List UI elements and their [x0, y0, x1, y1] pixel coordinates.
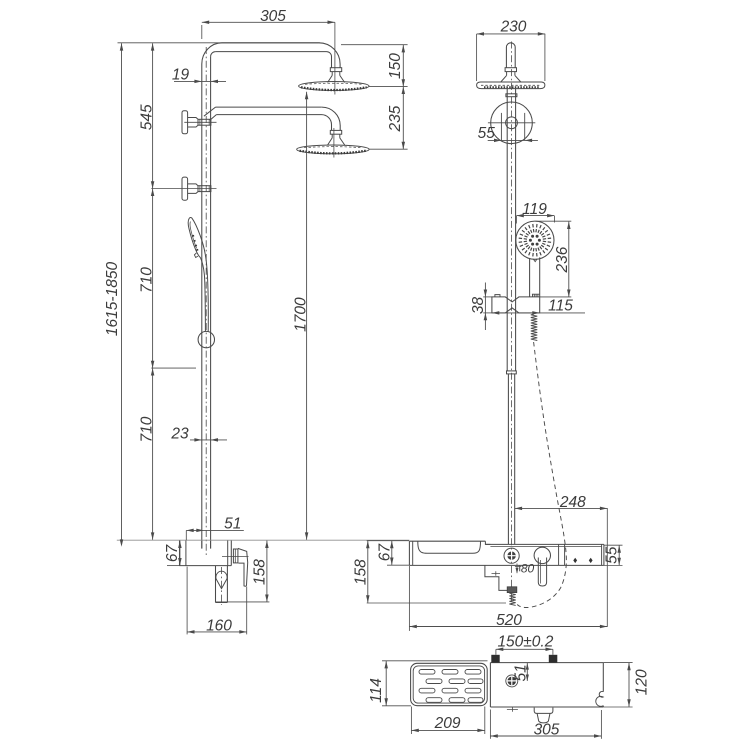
svg-text:51: 51 — [513, 664, 530, 681]
svg-text:23: 23 — [170, 426, 189, 443]
svg-text:120: 120 — [633, 669, 650, 695]
svg-text:1700: 1700 — [292, 297, 309, 332]
svg-text:520: 520 — [496, 612, 522, 629]
svg-text:710: 710 — [138, 267, 155, 293]
svg-text:545: 545 — [139, 104, 156, 130]
svg-text:305: 305 — [260, 8, 286, 25]
svg-text:55: 55 — [478, 125, 496, 142]
svg-text:236: 236 — [554, 246, 571, 273]
svg-text:710: 710 — [138, 416, 155, 442]
svg-text:160: 160 — [206, 617, 232, 634]
svg-text:1615-1850: 1615-1850 — [104, 262, 121, 337]
svg-text:80: 80 — [521, 561, 535, 575]
svg-text:305: 305 — [534, 722, 560, 739]
svg-text:230: 230 — [500, 19, 527, 36]
svg-text:235: 235 — [387, 105, 404, 132]
svg-text:67: 67 — [376, 543, 393, 562]
svg-text:248: 248 — [559, 494, 586, 511]
svg-text:19: 19 — [172, 67, 190, 84]
svg-text:150±0.2: 150±0.2 — [497, 634, 553, 651]
svg-text:67: 67 — [164, 544, 181, 563]
svg-text:38: 38 — [470, 297, 487, 315]
svg-text:158: 158 — [251, 559, 268, 585]
svg-text:115: 115 — [548, 298, 573, 315]
svg-text:51: 51 — [224, 515, 241, 532]
svg-text:114: 114 — [368, 678, 385, 703]
svg-text:119: 119 — [522, 201, 547, 218]
svg-text:55: 55 — [604, 546, 621, 564]
svg-text:158: 158 — [352, 559, 369, 585]
svg-text:209: 209 — [434, 715, 461, 732]
svg-text:150: 150 — [387, 53, 404, 79]
